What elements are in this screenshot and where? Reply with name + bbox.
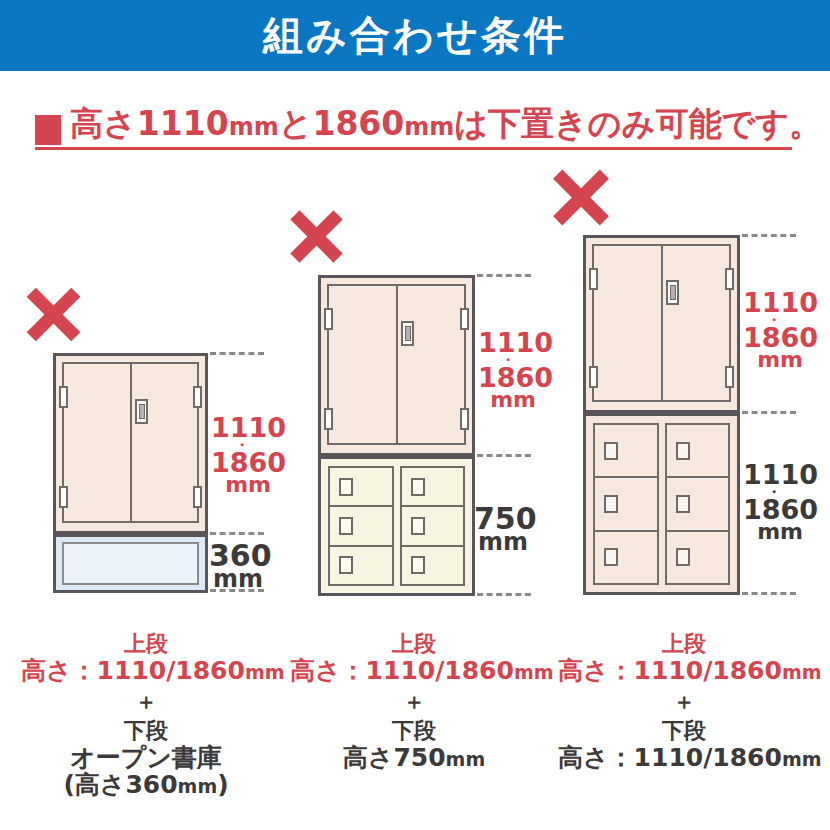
locker-handle-icon: [339, 517, 353, 535]
hinge-icon: [589, 366, 598, 388]
hinge-icon: [59, 386, 68, 408]
locker-cell: [402, 468, 464, 507]
combination-conditions-sheet: 組み合わせ条件 高さ1110mmと1860mmは下置きのみ可能です。 1110 …: [0, 0, 830, 830]
notice-heading: 高さ1110mmと1860mmは下置きのみ可能です。: [70, 102, 810, 149]
caption-right: 上段 高さ：1110/1860mm ＋ 下段 高さ：1110/1860mm: [558, 630, 810, 773]
hinge-icon: [460, 408, 469, 430]
dashed-guide-line: [477, 454, 531, 457]
locker-handle-icon: [676, 495, 690, 513]
upper-height-label: 1110 ・ 1860 mm: [478, 331, 538, 410]
caption-text: (高さ360: [63, 770, 177, 799]
caption-middle: 上段 高さ：1110/1860mm ＋ 下段 高さ750mm: [290, 630, 538, 773]
locker-column: [400, 466, 466, 586]
x-mark-icon: [557, 173, 605, 221]
cabinet-doors: [592, 244, 731, 402]
upper-height-label: 1110 ・ 1860 mm: [743, 291, 805, 370]
plus-sign: ＋: [21, 686, 271, 717]
door-divider: [661, 246, 663, 400]
caption-upper-height: 高さ：1110/1860mm: [558, 657, 810, 686]
door-divider: [130, 364, 132, 521]
caption-lower-height: (高さ360mm): [21, 771, 271, 800]
locker-handle-icon: [411, 556, 425, 574]
locker-handle-icon: [604, 442, 618, 460]
cabinet-doors: [327, 284, 466, 445]
caption-unit: mm: [245, 661, 285, 683]
cabinet-doors: [62, 362, 199, 523]
locker-cell: [667, 478, 729, 531]
dim-value: 1860: [743, 498, 805, 521]
page-title: 組み合わせ条件: [0, 0, 830, 71]
locker-handle-icon: [604, 548, 618, 566]
dashed-guide-line: [477, 274, 531, 277]
locker-handle-icon: [604, 495, 618, 513]
locker-cell: [667, 532, 729, 583]
dim-unit: mm: [209, 568, 267, 590]
caption-text: 高さ：1110/1860: [558, 656, 782, 685]
door-divider: [396, 286, 398, 443]
caption-upper-label: 上段: [21, 630, 271, 657]
caption-text: 高さ750: [343, 743, 446, 772]
caption-lower-label: 下段: [21, 717, 271, 744]
upper-cabinet: [583, 235, 740, 413]
notice-seg: と1860: [279, 104, 405, 143]
lower-height-label: 360 mm: [209, 543, 267, 590]
caption-unit: mm: [514, 661, 554, 683]
caption-text: 高さ：1110/1860: [290, 656, 514, 685]
dim-value: 1860: [478, 366, 538, 389]
hinge-icon: [59, 486, 68, 508]
caption-upper-label: 上段: [558, 630, 810, 657]
caption-unit: mm: [782, 748, 822, 770]
dim-unit: mm: [474, 531, 532, 553]
caption-upper-height: 高さ：1110/1860mm: [290, 657, 538, 686]
door-handle-icon: [401, 321, 414, 346]
hinge-icon: [460, 308, 469, 330]
lower-height-label: 1110 ・ 1860 mm: [743, 463, 805, 542]
locker-handle-icon: [676, 548, 690, 566]
door-lock: [670, 285, 676, 300]
upper-cabinet: [53, 353, 208, 534]
header-bar: 組み合わせ条件: [0, 0, 830, 71]
hinge-icon: [725, 268, 734, 290]
locker-cell: [595, 478, 657, 531]
locker-column: [665, 423, 731, 585]
hinge-icon: [324, 308, 333, 330]
locker-handle-icon: [676, 442, 690, 460]
notice-seg: は下置きのみ可能です。: [454, 104, 822, 143]
hinge-icon: [589, 268, 598, 290]
door-handle-icon: [666, 280, 679, 305]
caption-lower-label: 下段: [290, 717, 538, 744]
dim-value: 1860: [211, 451, 273, 474]
locker-cell: [402, 547, 464, 584]
caption-text: ): [217, 770, 228, 799]
upper-cabinet: [318, 275, 475, 456]
dashed-guide-line: [742, 234, 796, 237]
plus-sign: ＋: [290, 686, 538, 717]
locker-cell: [330, 507, 392, 546]
locker-unit-750: [318, 456, 475, 596]
dim-value: 1860: [743, 326, 805, 349]
caption-left: 上段 高さ：1110/1860mm ＋ 下段 オープン書庫 (高さ360mm): [21, 630, 271, 800]
caption-unit: mm: [446, 748, 486, 770]
notice-seg: 高さ1110: [70, 104, 229, 143]
dashed-guide-line: [742, 411, 796, 414]
locker-cell: [595, 425, 657, 478]
locker-unit-tall: [583, 413, 740, 595]
locker-handle-icon: [339, 556, 353, 574]
caption-lower-name: オープン書庫: [21, 744, 271, 771]
dashed-guide-line: [210, 352, 264, 355]
caption-upper-height: 高さ：1110/1860mm: [21, 657, 271, 686]
door-lock: [139, 404, 145, 419]
locker-cell: [402, 507, 464, 546]
open-shelf-opening: [62, 542, 199, 585]
caption-upper-label: 上段: [290, 630, 538, 657]
dashed-guide-line: [210, 532, 264, 535]
hinge-icon: [193, 486, 202, 508]
caption-text: 高さ：1110/1860: [558, 743, 782, 772]
locker-column: [328, 466, 394, 586]
hinge-icon: [324, 408, 333, 430]
locker-cell: [667, 425, 729, 478]
locker-handle-icon: [339, 478, 353, 496]
notice-underline: [35, 147, 792, 150]
x-mark-icon: [31, 292, 76, 337]
locker-handle-icon: [411, 517, 425, 535]
door-handle-icon: [135, 399, 148, 424]
locker-cell: [595, 532, 657, 583]
hinge-icon: [193, 386, 202, 408]
notice-unit: mm: [229, 113, 279, 141]
dashed-guide-line: [742, 592, 796, 595]
caption-lower-height: 高さ：1110/1860mm: [558, 744, 810, 773]
red-square-icon: [35, 115, 61, 145]
caption-text: 高さ：1110/1860: [21, 656, 245, 685]
caption-unit: mm: [782, 661, 822, 683]
hinge-icon: [725, 366, 734, 388]
open-shelf-unit: [53, 534, 208, 593]
caption-unit: mm: [178, 775, 218, 797]
caption-lower-label: 下段: [558, 717, 810, 744]
locker-column: [593, 423, 659, 585]
plus-sign: ＋: [558, 686, 810, 717]
dashed-guide-line: [477, 593, 531, 596]
locker-handle-icon: [411, 478, 425, 496]
notice-unit: mm: [404, 113, 454, 141]
upper-height-label: 1110 ・ 1860 mm: [211, 416, 273, 495]
lower-height-label: 750 mm: [474, 506, 532, 553]
x-mark-icon: [295, 215, 338, 258]
caption-lower-height: 高さ750mm: [290, 744, 538, 773]
locker-cell: [330, 547, 392, 584]
door-lock: [405, 326, 411, 341]
locker-cell: [330, 468, 392, 507]
